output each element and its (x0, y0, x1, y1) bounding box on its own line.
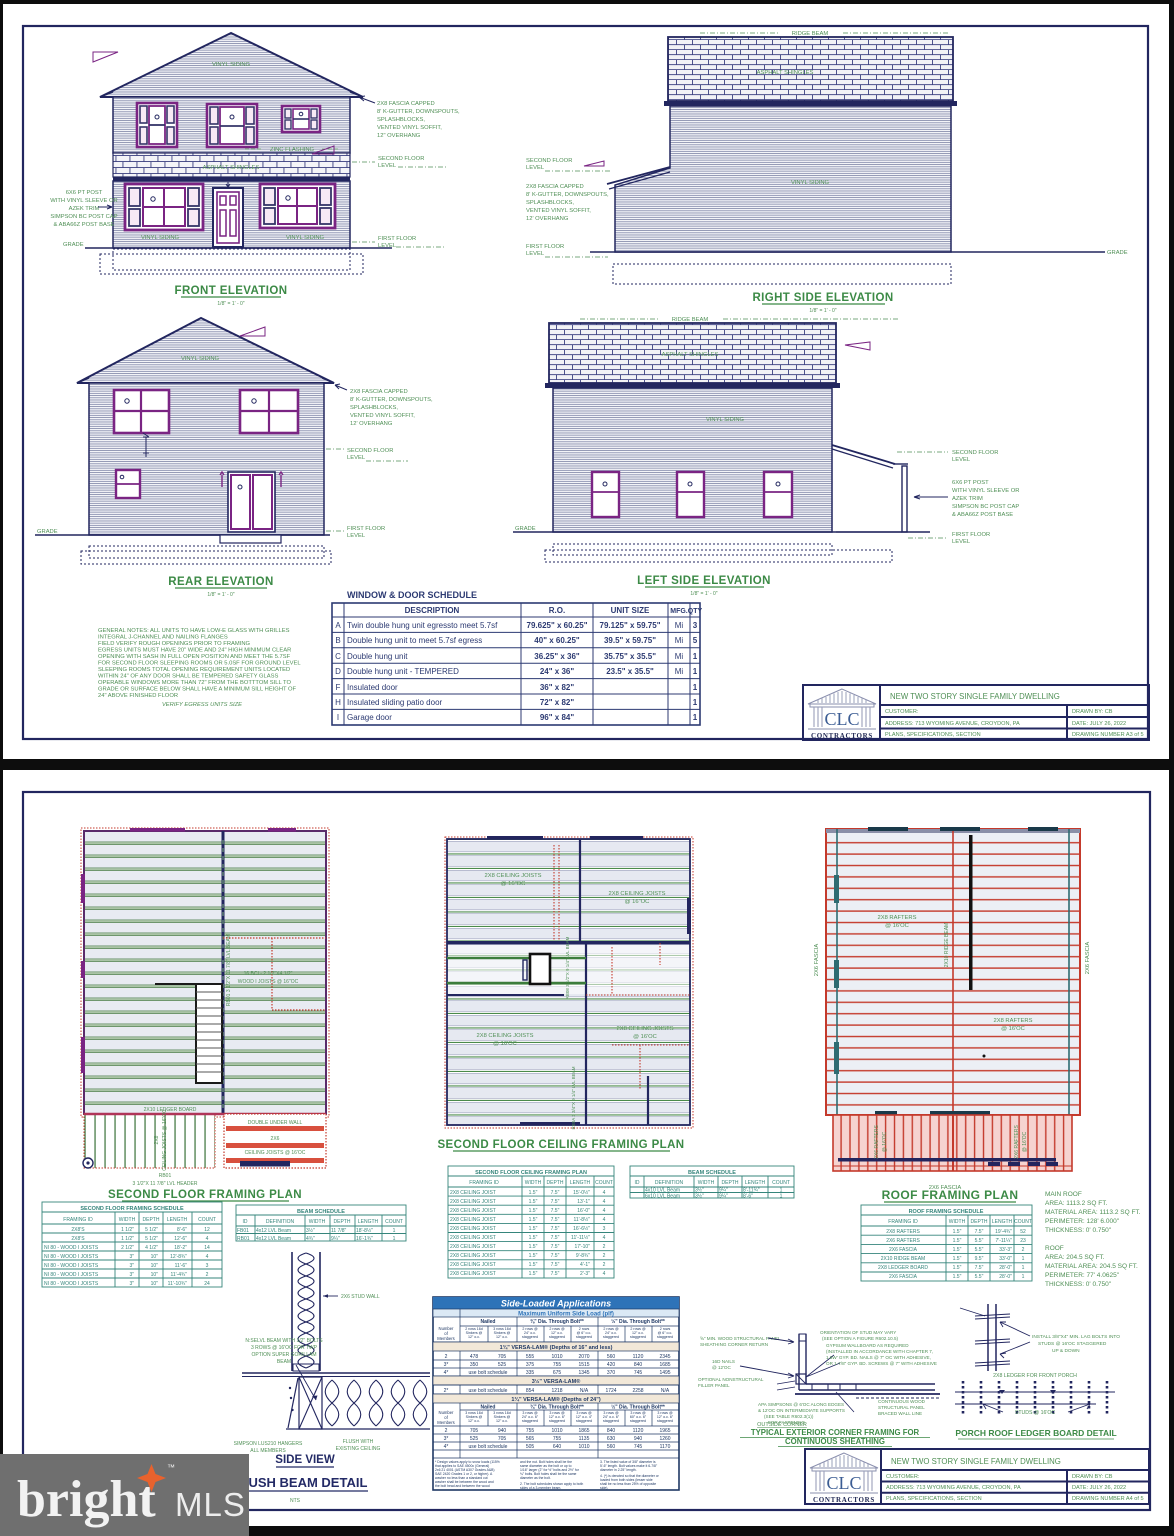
svg-text:ROOF FRAMING PLAN: ROOF FRAMING PLAN (882, 1188, 1019, 1202)
svg-text:NI 80 - WOOD I JOISTS: NI 80 - WOOD I JOISTS (44, 1272, 99, 1278)
svg-text:2X6 STUD WALL: 2X6 STUD WALL (341, 1294, 380, 1300)
svg-text:THICKNESS: 0' 0.750": THICKNESS: 0' 0.750" (1045, 1281, 1112, 1288)
svg-text:675: 675 (553, 1370, 562, 1376)
svg-text:5 1/2": 5 1/2" (145, 1236, 158, 1242)
svg-text:SECOND FLOOR FRAMING SCHEDULE: SECOND FLOOR FRAMING SCHEDULE (80, 1206, 184, 1212)
svg-text:FOR SECOND FLOOR SLEEPING ROOM: FOR SECOND FLOOR SLEEPING ROOMS OR 5.0SF… (98, 661, 301, 667)
svg-text:7.5": 7.5" (551, 1235, 560, 1241)
svg-text:755: 755 (553, 1436, 562, 1442)
svg-text:@ 16'OC: @ 16'OC (885, 923, 909, 929)
svg-text:CEILING JOISTS @ 16'OC: CEILING JOISTS @ 16'OC (245, 1150, 306, 1156)
svg-text:1 1/2": 1 1/2" (121, 1236, 134, 1242)
svg-text:36.25" x 36": 36.25" x 36" (534, 652, 580, 661)
svg-text:10": 10" (151, 1281, 159, 1287)
svg-text:2X8 CEILING JOIST: 2X8 CEILING JOIST (450, 1271, 496, 1277)
svg-text:1.5": 1.5" (953, 1274, 962, 1280)
svg-text:9¼": 9¼" (331, 1236, 340, 1242)
svg-text:370: 370 (607, 1370, 616, 1376)
svg-text:ADDRESS: 713 WYOMING AVENUE,: ADDRESS: 713 WYOMING AVENUE, CROYDON, PA (886, 1485, 1021, 1491)
svg-text:35.75" x 35.5": 35.75" x 35.5" (604, 652, 656, 661)
svg-text:@ 16"OC: @ 16"OC (625, 899, 650, 905)
svg-text:2X8 CEILING JOIST: 2X8 CEILING JOIST (450, 1208, 496, 1214)
svg-text:OPTION SUPER GORILLAM: OPTION SUPER GORILLAM (251, 1352, 316, 1358)
svg-text:1345: 1345 (578, 1370, 589, 1376)
svg-text:Double hung unit to meet 5.7sf: Double hung unit to meet 5.7sf egress (347, 636, 482, 645)
svg-text:H: H (335, 698, 341, 707)
svg-text:2070: 2070 (578, 1354, 589, 1360)
svg-text:12" OVERHANG: 12" OVERHANG (377, 133, 421, 139)
svg-text:8'-6": 8'-6" (743, 1194, 753, 1200)
svg-text:GYPSUM WALLBOARD AS REQUIRED: GYPSUM WALLBOARD AS REQUIRED (826, 1343, 909, 1348)
svg-text:DATE: JULY 26, 2022: DATE: JULY 26, 2022 (1072, 1485, 1126, 1491)
svg-text:2X8 RAFTERS: 2X8 RAFTERS (886, 1229, 920, 1235)
svg-text:640: 640 (553, 1444, 562, 1450)
svg-text:PERIMETER: 77' 4.0625": PERIMETER: 77' 4.0625" (1045, 1272, 1120, 1279)
svg-text:18'-2": 18'-2" (174, 1245, 187, 1251)
svg-text:bright: bright (17, 1471, 156, 1528)
svg-text:Mi: Mi (675, 621, 684, 630)
svg-text:4x12 LVL Beam: 4x12 LVL Beam (256, 1236, 291, 1242)
svg-text:2X10 LEDGER BOARD: 2X10 LEDGER BOARD (144, 1107, 197, 1113)
svg-text:2X6 FASCIA: 2X6 FASCIA (814, 944, 820, 977)
svg-text:1.5": 1.5" (953, 1238, 962, 1244)
svg-text:WITHIN 24" OF ANY DOOR SHALL B: WITHIN 24" OF ANY DOOR SHALL BE TEMPERED… (98, 674, 278, 680)
svg-text:ZINC FLASHING: ZINC FLASHING (270, 147, 315, 153)
svg-text:1.5": 1.5" (529, 1271, 538, 1277)
svg-text:VINYL SIDING: VINYL SIDING (141, 235, 180, 241)
svg-text:1/8" = 1' - 0": 1/8" = 1' - 0" (217, 301, 244, 307)
svg-text:& 12'OC ON INTERMEDIATE SUPPOR: & 12'OC ON INTERMEDIATE SUPPORTS (758, 1408, 845, 1413)
svg-text:3*: 3* (444, 1362, 449, 1368)
svg-text:OR 1-7/8" GYP. BD. SCREWS @ 7": OR 1-7/8" GYP. BD. SCREWS @ 7" WITH ADHE… (826, 1361, 937, 1366)
svg-text:33'-3": 33'-3" (999, 1247, 1012, 1253)
svg-text:RIGHT SIDE ELEVATION: RIGHT SIDE ELEVATION (752, 292, 893, 304)
svg-text:1/8" = 1' - 0": 1/8" = 1' - 0" (809, 308, 836, 314)
svg-text:EGRESS UNITS MUST HAVE 20" WID: EGRESS UNITS MUST HAVE 20" WIDE AND 24" … (98, 648, 291, 654)
svg-text:10": 10" (151, 1254, 159, 1260)
svg-text:36" x 82": 36" x 82" (540, 683, 574, 692)
svg-text:1.5": 1.5" (953, 1265, 962, 1271)
svg-text:4: 4 (603, 1199, 606, 1205)
svg-text:WOOD I JOISTS @ 16"OC: WOOD I JOISTS @ 16"OC (238, 979, 299, 985)
svg-text:16'-6½": 16'-6½" (573, 1225, 590, 1232)
svg-text:1135: 1135 (579, 1436, 590, 1442)
svg-text:755: 755 (526, 1428, 535, 1434)
svg-text:560: 560 (607, 1444, 616, 1450)
svg-text:350: 350 (470, 1362, 479, 1368)
svg-text:FIRST FLOOR: FIRST FLOOR (378, 236, 416, 242)
svg-text:8' K-GUTTER, DOWNSPOUTS,: 8' K-GUTTER, DOWNSPOUTS, (377, 109, 460, 115)
svg-text:1: 1 (1022, 1274, 1025, 1280)
svg-text:28'-0": 28'-0" (999, 1265, 1012, 1271)
svg-text:7.5": 7.5" (975, 1229, 984, 1235)
svg-text:side).: side). (600, 1486, 608, 1490)
svg-text:use bolt schedule: use bolt schedule (469, 1370, 508, 1376)
svg-text:REAR ELEVATION: REAR ELEVATION (168, 576, 273, 588)
svg-text:840: 840 (634, 1362, 643, 1368)
svg-text:WITH VINYL SLEEVE OR: WITH VINYL SLEEVE OR (952, 488, 1019, 494)
svg-text:DRAWN BY: CB: DRAWN BY: CB (1072, 709, 1113, 715)
svg-text:1724: 1724 (605, 1388, 616, 1394)
svg-text:6X6 PT POST: 6X6 PT POST (952, 480, 989, 486)
svg-text:2X8 LEDGER BOARD: 2X8 LEDGER BOARD (878, 1265, 928, 1271)
svg-text:7.5": 7.5" (975, 1265, 984, 1271)
svg-text:16'-1¾": 16'-1¾" (356, 1236, 373, 1242)
svg-text:(SEE OPTION A FIGURE R602.10.5: (SEE OPTION A FIGURE R602.10.5) (822, 1336, 899, 1341)
svg-text:ROOF FRAMING SCHEDULE: ROOF FRAMING SCHEDULE (909, 1209, 984, 1215)
svg-text:2X10 RIDGE BEAM: 2X10 RIDGE BEAM (944, 923, 950, 967)
svg-text:LENGTH: LENGTH (167, 1217, 188, 1223)
svg-text:1/8" = 1' - 0": 1/8" = 1' - 0" (207, 592, 234, 598)
svg-text:1: 1 (693, 667, 698, 676)
svg-text:RB08 3 1/2"X 9 1/4" LVL BEAM: RB08 3 1/2"X 9 1/4" LVL BEAM (565, 936, 570, 999)
svg-text:1.5": 1.5" (529, 1235, 538, 1241)
svg-text:CUSTOMER:: CUSTOMER: (885, 709, 919, 715)
svg-text:1: 1 (693, 698, 698, 707)
svg-text:1: 1 (393, 1228, 396, 1234)
svg-text:GRADE: GRADE (515, 526, 536, 532)
svg-text:7.5": 7.5" (551, 1271, 560, 1277)
svg-text:SECOND FLOOR FRAMING PLAN: SECOND FLOOR FRAMING PLAN (108, 1189, 302, 1201)
svg-text:1515: 1515 (578, 1362, 589, 1368)
svg-text:B: B (335, 636, 340, 645)
svg-text:2X8'S: 2X8'S (71, 1236, 85, 1242)
svg-text:SHEATHING CORNER RETURN: SHEATHING CORNER RETURN (700, 1342, 768, 1347)
svg-text:9'-8¾": 9'-8¾" (576, 1253, 590, 1259)
svg-text:SECOND FLOOR CEILING FRAMING P: SECOND FLOOR CEILING FRAMING PLAN (437, 1139, 684, 1151)
svg-text:2X8 LEDGER FOR FRONT PORCH: 2X8 LEDGER FOR FRONT PORCH (993, 1373, 1077, 1379)
svg-text:NI 80 - WOOD I JOISTS: NI 80 - WOOD I JOISTS (44, 1245, 99, 1251)
svg-text:2X8 CEILING JOIST: 2X8 CEILING JOIST (450, 1217, 496, 1223)
svg-text:3": 3" (129, 1281, 134, 1287)
svg-text:1120: 1120 (633, 1428, 644, 1434)
svg-text:375: 375 (526, 1362, 535, 1368)
svg-text:BRACED WALL LINE: BRACED WALL LINE (878, 1411, 922, 1416)
svg-text:DRAWING NUMBER A3 of 5: DRAWING NUMBER A3 of 5 (1072, 732, 1144, 738)
svg-text:1120: 1120 (633, 1354, 644, 1360)
svg-text:AZEK TRIM: AZEK TRIM (952, 496, 983, 502)
svg-text:OPTIONAL NONSTRUCTURAL: OPTIONAL NONSTRUCTURAL (698, 1377, 764, 1382)
svg-text:ORIENTATION OF STUD MAY VARY: ORIENTATION OF STUD MAY VARY (820, 1330, 896, 1335)
svg-text:SIMPSON BC POST CAP: SIMPSON BC POST CAP (50, 214, 117, 220)
svg-text:11 7/8": 11 7/8" (331, 1228, 347, 1234)
svg-text:3½": 3½" (695, 1187, 704, 1194)
svg-text:40" x 60.25": 40" x 60.25" (534, 636, 580, 645)
svg-text:C: C (335, 652, 341, 661)
svg-text:1170: 1170 (660, 1444, 671, 1450)
svg-text:Maximum Uniform Side Load (plf: Maximum Uniform Side Load (plf) (518, 1312, 614, 1318)
svg-text:840: 840 (607, 1428, 616, 1434)
svg-text:SLEEPING ROOMS TOTAL OPENING R: SLEEPING ROOMS TOTAL OPENING REQUIREMENT… (98, 667, 290, 673)
svg-text:staggered: staggered (603, 1419, 619, 1423)
svg-text:(SEE TABLE R602.3(1)): (SEE TABLE R602.3(1)) (764, 1414, 814, 1419)
svg-text:420: 420 (607, 1362, 616, 1368)
svg-text:4: 4 (206, 1254, 209, 1260)
svg-text:FIELD VERIFY ROUGH OPENINGS PR: FIELD VERIFY ROUGH OPENINGS PRIOR TO FRA… (98, 641, 251, 647)
svg-text:LEVEL: LEVEL (347, 533, 366, 539)
svg-text:Garage door: Garage door (347, 713, 392, 722)
svg-text:WIDTH: WIDTH (698, 1180, 715, 1186)
svg-text:SPLASHBLOCKS,: SPLASHBLOCKS, (350, 405, 398, 411)
svg-text:SECOND FLOOR: SECOND FLOOR (526, 158, 572, 164)
svg-text:5.5": 5.5" (975, 1247, 984, 1253)
svg-text:STRUCTURAL PANEL: STRUCTURAL PANEL (878, 1405, 925, 1410)
svg-text:4: 4 (603, 1235, 606, 1241)
svg-text:1: 1 (780, 1194, 783, 1200)
svg-text:@ 16'OC: @ 16'OC (1022, 1131, 1028, 1152)
svg-text:2X8 CEILING JOIST: 2X8 CEILING JOIST (450, 1190, 496, 1196)
svg-text:FIRST FLOOR: FIRST FLOOR (952, 532, 990, 538)
svg-text:3: 3 (206, 1263, 209, 1269)
svg-text:630: 630 (607, 1436, 616, 1442)
svg-text:FIRST FLOOR: FIRST FLOOR (526, 244, 564, 250)
svg-text:2X6 RAFTERS: 2X6 RAFTERS (886, 1238, 920, 1244)
svg-text:1.5": 1.5" (529, 1208, 538, 1214)
svg-text:@ 16'OC: @ 16'OC (633, 1034, 657, 1040)
svg-text:16 BCI - 2 1/2"X4 1/2": 16 BCI - 2 1/2"X4 1/2" (244, 971, 293, 977)
svg-text:DEFINITION: DEFINITION (266, 1219, 295, 1225)
svg-text:8' K-GUTTER, DOWNSPOUTS,: 8' K-GUTTER, DOWNSPOUTS, (350, 397, 433, 403)
svg-text:79.125" x 59.75": 79.125" x 59.75" (600, 621, 661, 630)
svg-text:745: 745 (634, 1444, 643, 1450)
svg-text:24" ABOVE FINISHED FLOOR: 24" ABOVE FINISHED FLOOR (98, 693, 178, 699)
svg-text:1.5": 1.5" (529, 1253, 538, 1259)
svg-text:2X8 CEILING JOISTS: 2X8 CEILING JOISTS (616, 1026, 673, 1032)
svg-text:ID: ID (635, 1180, 640, 1186)
svg-text:staggered: staggered (549, 1335, 565, 1339)
svg-text:1260: 1260 (659, 1436, 670, 1442)
svg-text:2X8 CEILING JOIST: 2X8 CEILING JOIST (450, 1244, 496, 1250)
svg-text:7.5": 7.5" (551, 1226, 560, 1232)
svg-text:CONTINUOUS WOOD: CONTINUOUS WOOD (878, 1399, 926, 1404)
svg-text:2 1/2": 2 1/2" (121, 1245, 134, 1251)
svg-text:STUDS @ 16'OC STAGGERED: STUDS @ 16'OC STAGGERED (1038, 1341, 1107, 1347)
svg-text:2X8: 2X8 (154, 1135, 160, 1144)
svg-text:¾" Dia. Through Bolt**: ¾" Dia. Through Bolt** (530, 1404, 584, 1411)
svg-text:11'-8½": 11'-8½" (573, 1216, 590, 1223)
svg-text:LENGTH: LENGTH (992, 1219, 1013, 1225)
svg-text:3½" VERSA-LAM®: 3½" VERSA-LAM® (532, 1378, 581, 1385)
svg-text:staggered: staggered (603, 1335, 619, 1339)
svg-text:940: 940 (498, 1428, 507, 1434)
svg-text:FB01: FB01 (237, 1228, 249, 1234)
svg-text:INSTALL 3/8"X4" MIN. LAG BOLTS: INSTALL 3/8"X4" MIN. LAG BOLTS INTO (1032, 1334, 1120, 1340)
svg-text:1010: 1010 (551, 1428, 562, 1434)
svg-text:3 1/2"X 11 7/8" LVL HEADER: 3 1/2"X 11 7/8" LVL HEADER (133, 1181, 198, 1187)
svg-text:1495: 1495 (659, 1370, 670, 1376)
svg-text:TYPICAL EXTERIOR CORNER FRAMIN: TYPICAL EXTERIOR CORNER FRAMING FOR (751, 1428, 920, 1437)
svg-text:12'-8¾": 12'-8¾" (170, 1254, 187, 1260)
svg-text:16D NAILS: 16D NAILS (712, 1359, 735, 1364)
svg-text:5.5": 5.5" (975, 1274, 984, 1280)
svg-text:QTY: QTY (688, 608, 703, 615)
svg-text:565: 565 (526, 1436, 535, 1442)
svg-text:2X6 FASCIA: 2X6 FASCIA (889, 1274, 918, 1280)
svg-text:7'-11¼": 7'-11¼" (995, 1238, 1012, 1244)
svg-text:RB01 3 1/2"X 11 7/8" LVL BEAM: RB01 3 1/2"X 11 7/8" LVL BEAM (226, 934, 232, 1006)
svg-text:LEVEL: LEVEL (952, 457, 971, 463)
svg-text:3": 3" (129, 1263, 134, 1269)
svg-text:4x12 LVL Beam: 4x12 LVL Beam (256, 1228, 291, 1234)
svg-text:9¼": 9¼" (719, 1194, 728, 1200)
svg-text:2X8 FASCIA CAPPED: 2X8 FASCIA CAPPED (377, 101, 435, 107)
svg-text:MATERIAL AREA: 1113.2 SQ FT.: MATERIAL AREA: 1113.2 SQ FT. (1045, 1209, 1141, 1216)
svg-text:1865: 1865 (578, 1428, 589, 1434)
svg-text:VERIFY EGRESS UNITS SIZE: VERIFY EGRESS UNITS SIZE (162, 702, 242, 708)
svg-text:LEVEL: LEVEL (526, 251, 545, 257)
svg-text:2: 2 (603, 1253, 606, 1259)
svg-text:2X8 FASCIA CAPPED: 2X8 FASCIA CAPPED (526, 184, 584, 190)
svg-text:COUNT: COUNT (772, 1180, 790, 1186)
svg-text:3*: 3* (444, 1436, 449, 1442)
svg-text:1.5": 1.5" (529, 1190, 538, 1196)
svg-text:6X6 PT POST: 6X6 PT POST (66, 190, 103, 196)
svg-text:BEAM SCHEDULE: BEAM SCHEDULE (297, 1209, 345, 1215)
svg-text:23: 23 (1020, 1238, 1026, 1244)
svg-text:1010: 1010 (578, 1444, 589, 1450)
svg-text:CUSTOMER:: CUSTOMER: (886, 1474, 920, 1480)
svg-text:⅜" Dia. Through Bolt**: ⅜" Dia. Through Bolt** (530, 1319, 584, 1325)
svg-text:F: F (336, 683, 341, 692)
svg-text:staggered: staggered (657, 1335, 673, 1339)
svg-text:VENTED VINYL SOFFIT,: VENTED VINYL SOFFIT, (526, 208, 591, 214)
svg-text:& ABA66Z POST BASE: & ABA66Z POST BASE (952, 512, 1013, 518)
svg-text:3½": 3½" (695, 1193, 704, 1200)
svg-text:5: 5 (693, 636, 698, 645)
svg-text:2: 2 (445, 1354, 448, 1360)
svg-text:Mi: Mi (675, 667, 684, 676)
svg-text:NEW TWO STORY SINGLE FAMILY DW: NEW TWO STORY SINGLE FAMILY DWELLING (891, 1457, 1061, 1466)
svg-text:Side-Loaded Applications: Side-Loaded Applications (501, 1299, 611, 1309)
svg-text:PLANS, SPECIFICATIONS, SECTION: PLANS, SPECIFICATIONS, SECTION (885, 732, 981, 738)
svg-text:FRONT ELEVATION: FRONT ELEVATION (175, 285, 288, 297)
svg-text:3": 3" (129, 1272, 134, 1278)
svg-text:STUDS @ 16'OC: STUDS @ 16'OC (1015, 1410, 1056, 1416)
svg-text:(INSTALLED IN ACCORDANCE WITH: (INSTALLED IN ACCORDANCE WITH CHAPTER 7, (826, 1349, 933, 1354)
svg-text:2: 2 (603, 1262, 606, 1268)
svg-text:MLS: MLS (175, 1486, 246, 1523)
svg-text:1: 1 (693, 683, 698, 692)
svg-text:2X8 CEILING JOIST: 2X8 CEILING JOIST (450, 1226, 496, 1232)
svg-text:NTS: NTS (290, 1498, 301, 1504)
svg-text:Members: Members (437, 1336, 454, 1341)
svg-text:11'-11½": 11'-11½" (571, 1234, 590, 1241)
svg-text:INTEGRAL J-CHANNEL AND NAILING: INTEGRAL J-CHANNEL AND NAILING FLANGES (98, 635, 228, 641)
svg-text:OPERABLE WINDOWS MORE THAN 72": OPERABLE WINDOWS MORE THAN 72" FROM THE … (98, 680, 291, 686)
svg-text:½" Dia. Through Bolt**: ½" Dia. Through Bolt** (611, 1404, 665, 1411)
svg-text:VINYL SIDING: VINYL SIDING (212, 62, 251, 68)
svg-text:1.5": 1.5" (529, 1262, 538, 1268)
svg-text:LEVEL: LEVEL (526, 165, 545, 171)
svg-text:19'-4¾": 19'-4¾" (995, 1229, 1012, 1235)
svg-text:staggered: staggered (657, 1419, 673, 1423)
svg-text:10": 10" (151, 1272, 159, 1278)
svg-text:VINYL SIDING: VINYL SIDING (181, 356, 220, 362)
svg-text:2: 2 (206, 1272, 209, 1278)
svg-text:DATE: JULY 26, 2022: DATE: JULY 26, 2022 (1072, 721, 1126, 727)
svg-text:GRADE: GRADE (1107, 250, 1128, 256)
svg-text:diameter in 2.25" length.: diameter in 2.25" length. (600, 1468, 637, 1472)
svg-text:96" x 84": 96" x 84" (540, 713, 574, 722)
svg-text:6x10 LVL Beam: 6x10 LVL Beam (645, 1194, 680, 1200)
svg-text:FIRST FLOOR: FIRST FLOOR (347, 526, 385, 532)
svg-text:NI 80 - WOOD I JOISTS: NI 80 - WOOD I JOISTS (44, 1263, 99, 1269)
svg-text:SIMPSON BC POST CAP: SIMPSON BC POST CAP (952, 504, 1019, 510)
svg-text:@ 12'OC: @ 12'OC (712, 1365, 731, 1370)
svg-text:GRADE: GRADE (63, 242, 84, 248)
svg-text:MAIN ROOF: MAIN ROOF (1045, 1191, 1082, 1198)
svg-text:FRAMING ID: FRAMING ID (63, 1217, 93, 1223)
svg-text:VINYL SIDING: VINYL SIDING (286, 235, 325, 241)
svg-text:staggered: staggered (549, 1419, 565, 1423)
svg-text:SPLASHBLOCKS,: SPLASHBLOCKS, (377, 117, 425, 123)
svg-text:2X10 RIDGE BEAM: 2X10 RIDGE BEAM (881, 1256, 925, 1262)
svg-text:WIDTH: WIDTH (525, 1180, 542, 1186)
svg-text:NI 80 - WOOD I JOISTS: NI 80 - WOOD I JOISTS (44, 1281, 99, 1287)
svg-text:NEW TWO STORY SINGLE FAMILY DW: NEW TWO STORY SINGLE FAMILY DWELLING (890, 692, 1060, 701)
svg-text:2: 2 (603, 1244, 606, 1250)
svg-text:15'-0½": 15'-0½" (573, 1189, 590, 1196)
svg-text:PLANS, SPECIFICATIONS, SECTION: PLANS, SPECIFICATIONS, SECTION (886, 1496, 982, 1502)
svg-text:staggered: staggered (630, 1419, 646, 1423)
svg-text:the bolt head and between the: the bolt head and between the wood (435, 1484, 490, 1488)
svg-text:13'-1": 13'-1" (577, 1199, 590, 1205)
svg-text:1: 1 (393, 1236, 396, 1242)
svg-text:DRAWING NUMBER A4 of 5: DRAWING NUMBER A4 of 5 (1072, 1496, 1144, 1502)
svg-text:4*: 4* (444, 1370, 449, 1376)
svg-text:ADDRESS: 713 WYOMING AVENUE,: ADDRESS: 713 WYOMING AVENUE, CROYDON, PA (885, 721, 1020, 727)
svg-text:1010: 1010 (551, 1354, 562, 1360)
svg-text:PORCH ROOF LEDGER BOARD DETAIL: PORCH ROOF LEDGER BOARD DETAIL (955, 1428, 1116, 1438)
svg-text:525: 525 (498, 1362, 507, 1368)
svg-text:Nailed: Nailed (480, 1319, 495, 1325)
svg-text:2X8 RAFTERS: 2X8 RAFTERS (994, 1018, 1033, 1024)
svg-text:OPENING WITH SASH IN FULL OPEN: OPENING WITH SASH IN FULL OPEN POSITION … (98, 654, 291, 660)
svg-text:12'-6": 12'-6" (174, 1236, 187, 1242)
svg-text:FRAMING ID: FRAMING ID (888, 1219, 918, 1225)
svg-text:N:SELVL BEAM WITH 1/2" BOLTS: N:SELVL BEAM WITH 1/2" BOLTS (245, 1338, 323, 1344)
svg-text:WIDTH: WIDTH (949, 1219, 966, 1225)
svg-text:A: A (335, 621, 341, 630)
svg-text:& ABA66Z POST BASE: & ABA66Z POST BASE (53, 222, 114, 228)
svg-text:Nailed: Nailed (480, 1405, 495, 1411)
svg-text:2X8 CEILING JOIST: 2X8 CEILING JOIST (450, 1235, 496, 1241)
svg-text:SECOND FLOOR CEILING FRAMING P: SECOND FLOOR CEILING FRAMING PLAN (475, 1170, 587, 1176)
svg-text:LEVEL: LEVEL (347, 455, 366, 461)
svg-text:7.5": 7.5" (551, 1199, 560, 1205)
svg-text:335: 335 (526, 1370, 535, 1376)
svg-text:R.O.: R.O. (549, 606, 565, 615)
svg-text:staggered: staggered (630, 1335, 646, 1339)
svg-text:8' K-GUTTER, DOWNSPOUTS,: 8' K-GUTTER, DOWNSPOUTS, (526, 192, 609, 198)
svg-text:ROOF: ROOF (1045, 1245, 1064, 1252)
svg-text:3½": 3½" (306, 1227, 315, 1234)
svg-text:17'-10": 17'-10" (574, 1244, 590, 1250)
svg-text:16'-0": 16'-0" (577, 1208, 590, 1214)
svg-text:COUNT: COUNT (198, 1217, 216, 1223)
svg-text:7.5": 7.5" (551, 1217, 560, 1223)
svg-text:1.5": 1.5" (529, 1226, 538, 1232)
svg-text:505: 505 (526, 1444, 535, 1450)
svg-text:1965: 1965 (659, 1428, 670, 1434)
svg-text:@ 16"OC: @ 16"OC (501, 881, 526, 887)
svg-text:1.5": 1.5" (529, 1244, 538, 1250)
svg-text:2258: 2258 (632, 1388, 643, 1394)
svg-text:sides of a 3-member beam.: sides of a 3-member beam. (520, 1486, 561, 1490)
svg-text:8'-6": 8'-6" (177, 1227, 187, 1233)
svg-text:™: ™ (167, 1463, 175, 1472)
svg-text:GRADE: GRADE (37, 529, 58, 535)
